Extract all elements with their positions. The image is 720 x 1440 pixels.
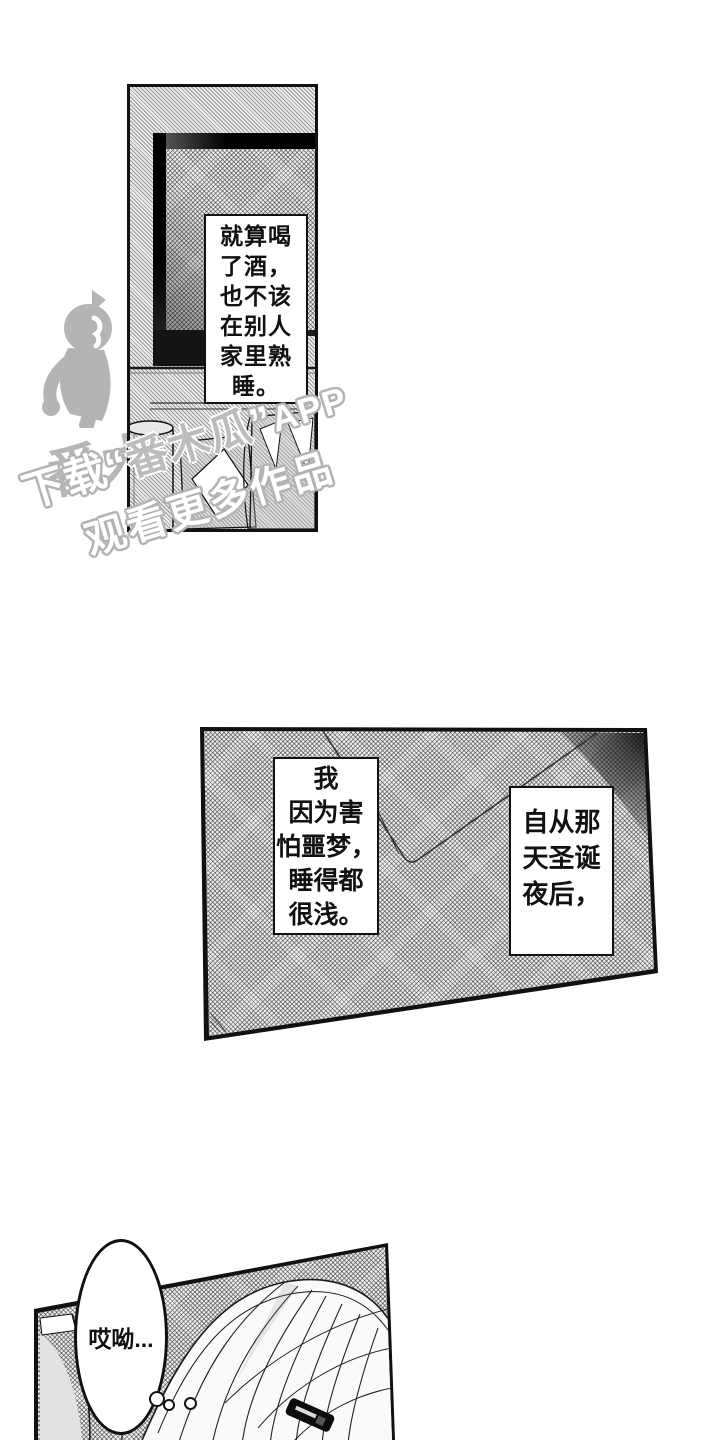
papaya-mascot-icon (40, 288, 135, 428)
panel-2: 我 因为害 怕噩梦， 睡得都 很浅。 自从那 天圣诞 夜后， (200, 726, 660, 1044)
narration-line: 家里熟 (206, 341, 306, 371)
bubble-tail-dot (184, 1397, 197, 1410)
narration-box: 自从那 天圣诞 夜后， (509, 786, 614, 956)
narration-line: 自从那 (511, 804, 612, 840)
papaya-app-logo: 番木瓜 (40, 288, 135, 433)
narration-line: 就算喝 (206, 221, 306, 251)
narration-line: 因为害 (275, 796, 377, 830)
speech-text: 哎呦... (88, 1320, 153, 1354)
bubble-tail-dot (163, 1399, 175, 1411)
manga-page: 番木瓜 就算喝 了酒， (0, 0, 720, 1440)
narration-line: 在别人 (206, 311, 306, 341)
narration-line: 怕噩梦， (275, 830, 377, 864)
narration-line: 天圣诞 (511, 840, 612, 876)
narration-line: 睡得都 (275, 864, 377, 898)
narration-line: 我 (275, 762, 377, 796)
narration-box: 就算喝 了酒， 也不该 在别人 家里熟 睡。 (204, 214, 308, 404)
narration-box: 我 因为害 怕噩梦， 睡得都 很浅。 (273, 757, 379, 935)
narration-line: 也不该 (206, 281, 306, 311)
narration-line: 夜后， (511, 876, 612, 912)
narration-line: 了酒， (206, 251, 306, 281)
narration-line: 很浅。 (275, 898, 377, 932)
